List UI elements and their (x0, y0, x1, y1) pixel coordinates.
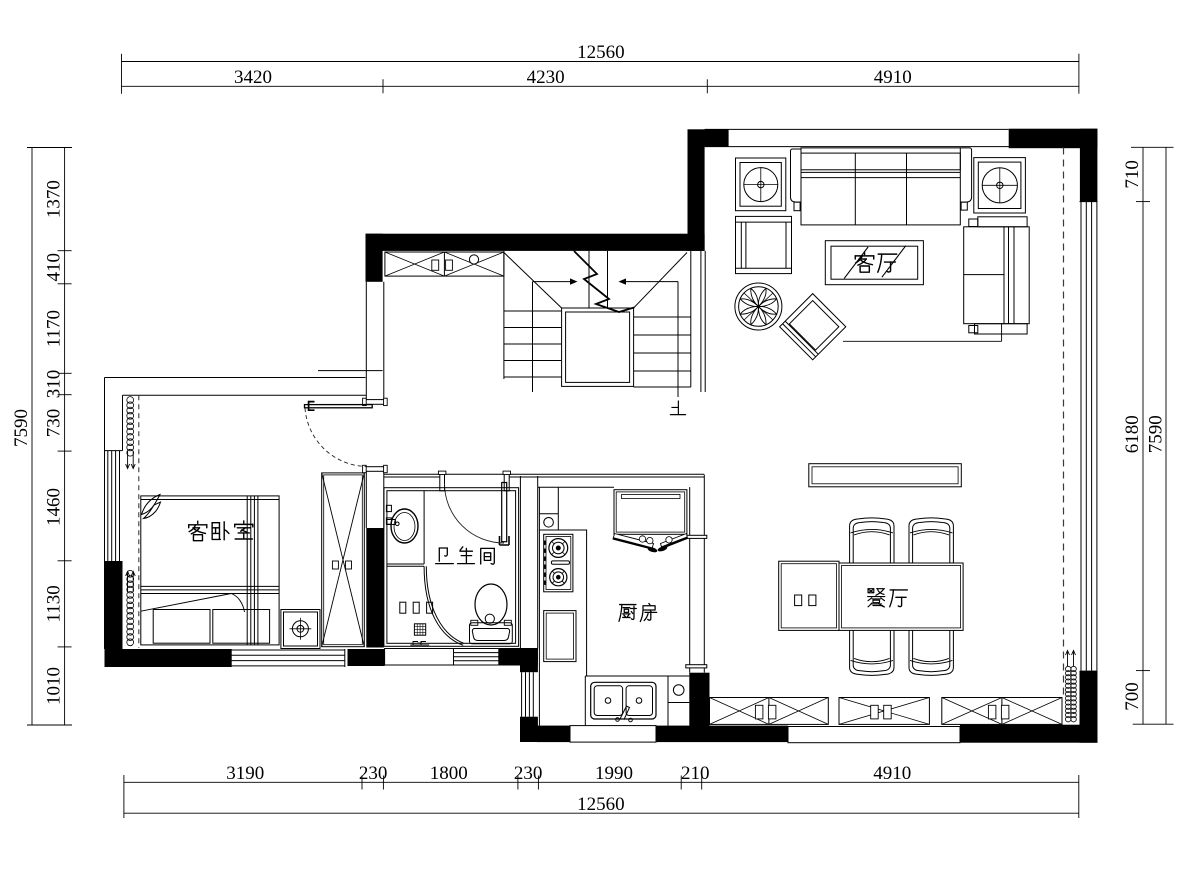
svg-text:210: 210 (681, 763, 710, 784)
svg-text:1130: 1130 (44, 585, 65, 622)
svg-text:3420: 3420 (234, 67, 272, 88)
svg-text:4910: 4910 (873, 763, 911, 784)
svg-text:1010: 1010 (44, 667, 65, 705)
svg-text:710: 710 (1122, 160, 1143, 189)
svg-text:3190: 3190 (226, 763, 264, 784)
svg-text:1170: 1170 (44, 310, 65, 347)
svg-text:1800: 1800 (430, 763, 468, 784)
svg-text:12560: 12560 (577, 42, 625, 63)
svg-text:230: 230 (359, 763, 388, 784)
svg-text:7590: 7590 (11, 409, 32, 447)
svg-text:1990: 1990 (595, 763, 633, 784)
svg-text:7590: 7590 (1146, 415, 1167, 453)
svg-text:12560: 12560 (577, 794, 625, 815)
svg-text:4230: 4230 (527, 67, 565, 88)
svg-text:310: 310 (44, 370, 65, 399)
svg-text:730: 730 (44, 409, 65, 438)
svg-text:230: 230 (514, 763, 543, 784)
svg-text:1370: 1370 (44, 180, 65, 218)
svg-text:700: 700 (1122, 682, 1143, 711)
svg-text:410: 410 (44, 253, 65, 282)
svg-text:4910: 4910 (874, 67, 912, 88)
svg-text:1460: 1460 (44, 488, 65, 526)
svg-text:6180: 6180 (1122, 415, 1143, 453)
